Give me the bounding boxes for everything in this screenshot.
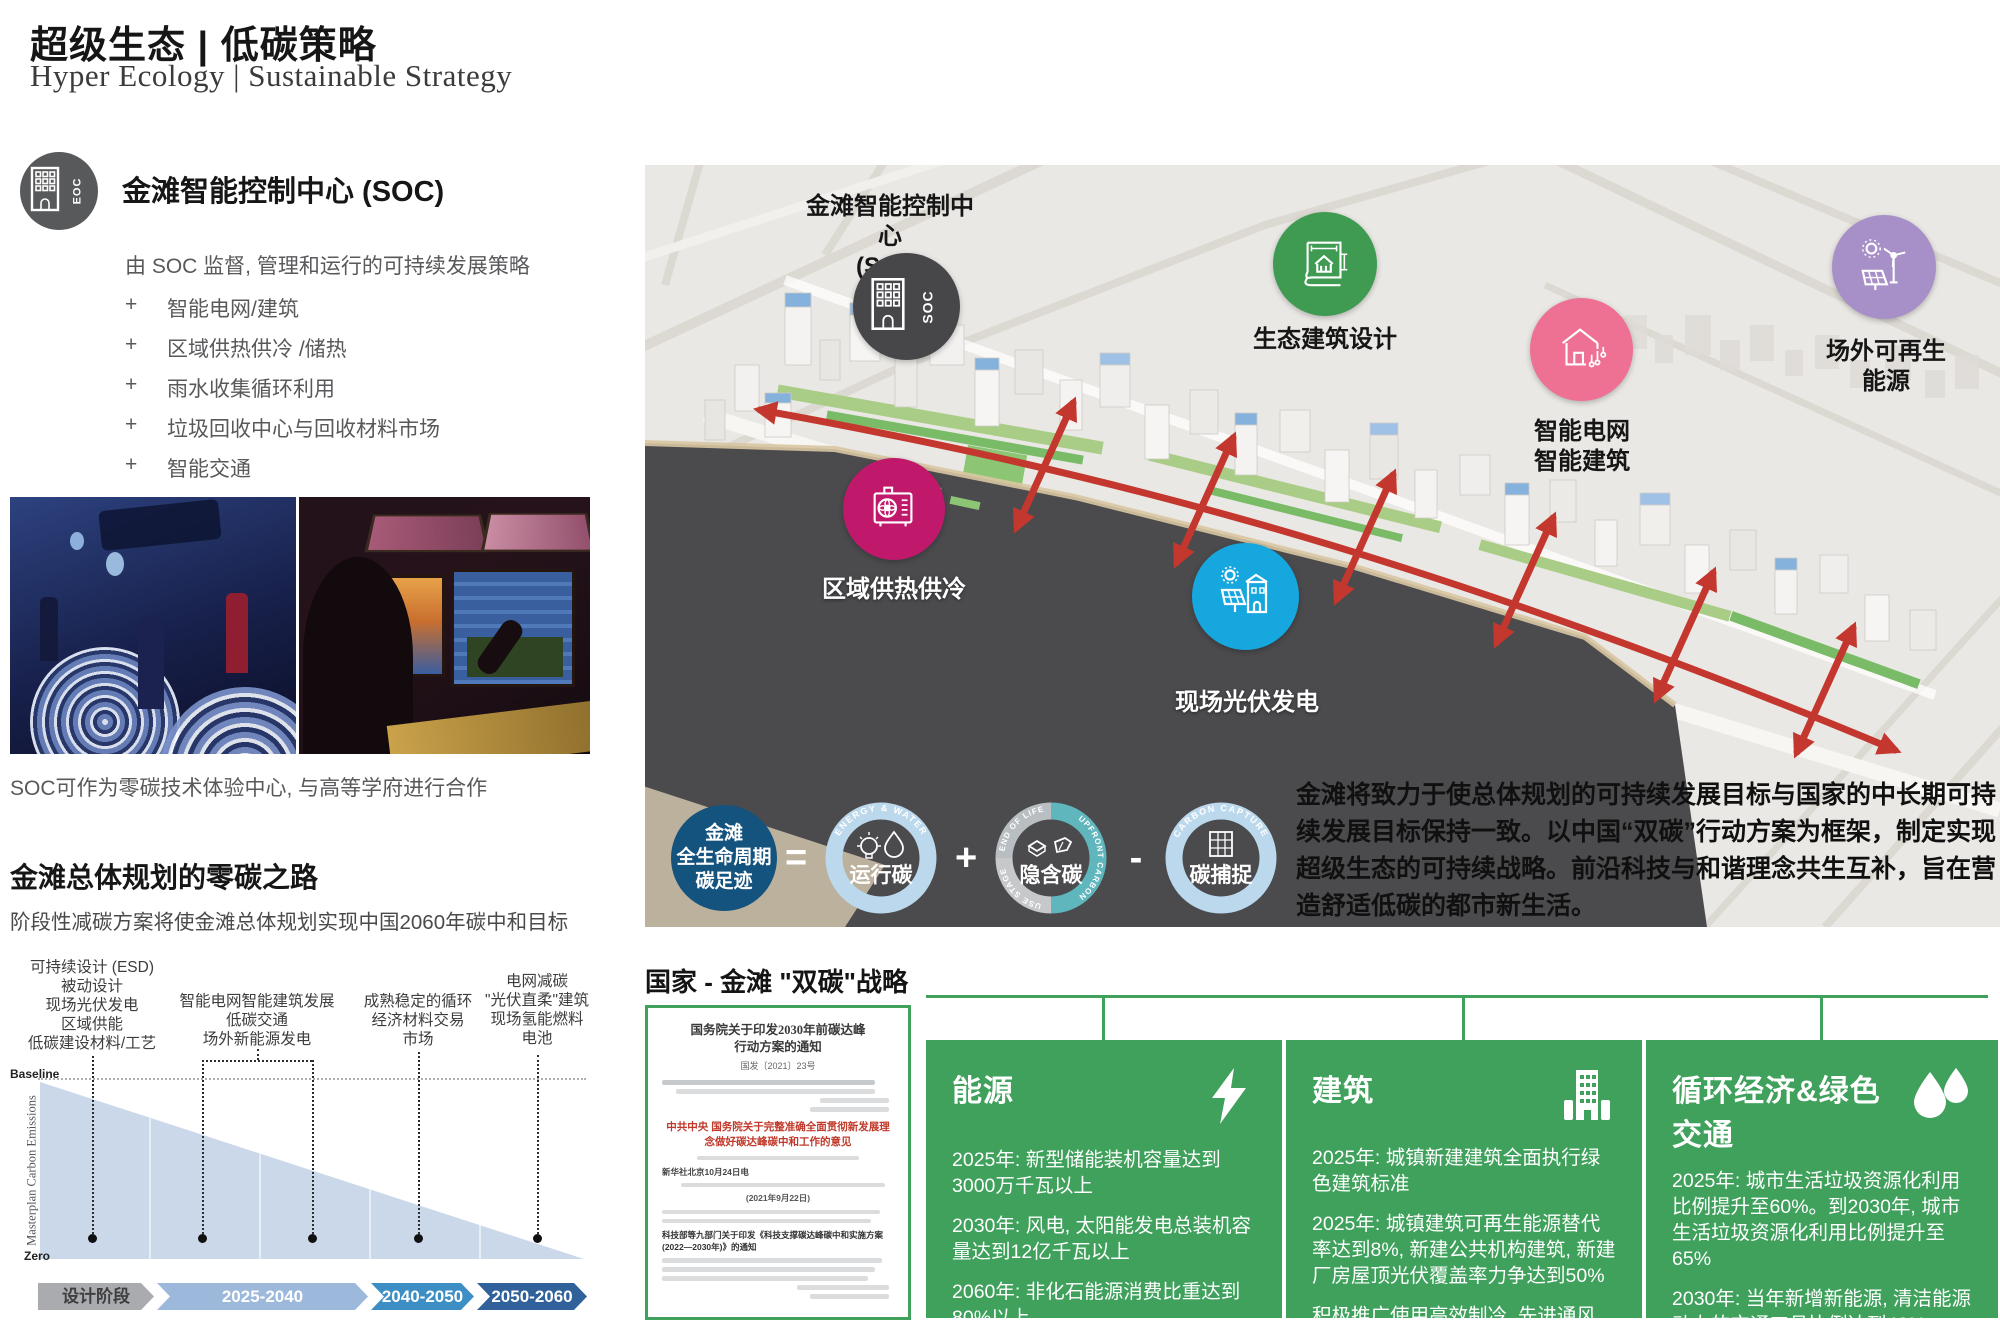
- milestone-stem: [537, 1055, 539, 1238]
- slide-page: 超级生态 | 低碳策略 Hyper Ecology | Sustainable …: [0, 0, 2000, 1324]
- photo-person: [226, 593, 248, 673]
- strategy-paragraph: 金滩将致力于使总体规划的可持续发展目标与国家的中长期可持续发展目标保持一致。以中…: [1296, 777, 1996, 925]
- photo-balloon: [70, 532, 84, 550]
- card-energy-item: 2025年: 新型储能装机容量达到3000万千瓦以上: [952, 1147, 1256, 1199]
- milestone-label-1: 可持续设计 (ESD) 被动设计 现场光伏发电 区域供能 低碳建设材料/工艺: [10, 958, 174, 1053]
- embodied-carbon-ring: END OF LIFE UPFRONT CARBON USE STAGE 隐含碳: [985, 792, 1117, 924]
- plus-sign: +: [955, 837, 977, 880]
- milestone-stem: [418, 1052, 420, 1238]
- phase-bar-2025-2040: 2025-2040: [157, 1283, 368, 1310]
- water-drops-icon: [1908, 1066, 1972, 1133]
- offsite-renewables-circle: [1832, 215, 1936, 319]
- milestone-label-4: 电网减碳 "光伏直柔"建筑 现场氢能燃料 电池: [457, 972, 617, 1048]
- milestone-stem: [202, 1060, 204, 1238]
- doc-title: 国务院关于印发2030年前碳达峰行动方案的通知: [662, 1022, 894, 1056]
- smart-house-icon: [1553, 318, 1611, 381]
- carbon-formula: 金滩 全生命周期 碳足迹 = ENERGY & WATER 运行碳 +: [671, 789, 1287, 927]
- doc-red-title: 中共中央 国务院关于完整准确全面贯彻新发展理念做好碳达峰碳中和工作的意见: [662, 1120, 894, 1150]
- card-buildings-title: 建筑: [1312, 1066, 1374, 1110]
- wind-solar-icon: [1855, 236, 1913, 299]
- soc-intro: 由 SOC 监督, 管理和运行的可持续发展策略: [125, 250, 565, 280]
- connector-stub: [1820, 995, 1823, 1042]
- card-energy: 能源 2025年: 新型储能装机容量达到3000万千瓦以上 2030年: 风电,…: [926, 1040, 1282, 1318]
- card-buildings-item: 2025年: 城镇新建建筑全面执行绿色建筑标准: [1312, 1145, 1616, 1197]
- photo-person: [40, 597, 58, 661]
- photo-strip: [10, 497, 590, 754]
- photo-touchscreen-kiosk: [299, 497, 590, 754]
- milestone-dot: [414, 1234, 423, 1243]
- milestone-dot: [533, 1234, 542, 1243]
- doc-body-lines: [662, 1080, 894, 1112]
- doc-number: 国发〔2021〕23号: [662, 1059, 894, 1072]
- connector-stub: [1462, 995, 1465, 1042]
- eco-design-circle: [1273, 212, 1377, 316]
- dual-carbon-heading: 国家 - 金滩 "双碳"战略: [645, 962, 908, 999]
- card-buildings: 建筑 2025年: 城镇新建建筑全面执行绿色建筑标准 2025年: 城镇建筑可再…: [1286, 1040, 1642, 1318]
- roadmap-subheading: 阶段性减碳方案将使金滩总体规划实现中国2060年碳中和目标: [10, 905, 568, 935]
- soc-heading: 金滩智能控制中心 (SOC): [122, 168, 444, 210]
- soc-circle-badge: SOC: [853, 253, 960, 360]
- lightning-bolt-icon: [1204, 1066, 1256, 1133]
- building-icon: [1554, 1066, 1616, 1131]
- photo-exhibit-hall: [10, 497, 296, 754]
- onsite-pv-circle: [1192, 543, 1299, 650]
- milestone-bracket: [202, 1060, 312, 1062]
- onsite-pv-label: 现场光伏发电: [1157, 688, 1337, 718]
- list-item: +区域供热供冷 /储热: [125, 333, 565, 363]
- carbon-capture-ring: CARBON CAPTURE 碳捕捉: [1155, 792, 1287, 924]
- card-circular-title: 循环经济&绿色交通: [1672, 1066, 1908, 1154]
- list-item: +智能电网/建筑: [125, 293, 565, 323]
- milestone-dot: [198, 1234, 207, 1243]
- doc-tech-title: 科技部等九部门关于印发《科技支撑碳达峰碳中和实施方案(2022—2030年)》的…: [662, 1229, 894, 1253]
- milestone-dot: [308, 1234, 317, 1243]
- milestone-stem: [257, 1049, 259, 1060]
- svg-text:碳捕捉: 碳捕捉: [1190, 863, 1254, 887]
- page-subtitle: Hyper Ecology | Sustainable Strategy: [30, 58, 512, 94]
- eco-design-label: 生态建筑设计: [1237, 325, 1413, 355]
- connector-line: [926, 995, 1988, 998]
- offsite-renewables-label: 场外可再生能源: [1811, 337, 1961, 397]
- card-circular-mobility: 循环经济&绿色交通 2025年: 城市生活垃圾资源化利用比例提升至60%。到20…: [1646, 1040, 1998, 1318]
- roadmap-heading: 金滩总体规划的零碳之路: [10, 856, 318, 896]
- operational-carbon-ring: ENERGY & WATER 运行碳: [815, 792, 947, 924]
- photo-kiosk-top: [364, 515, 489, 552]
- y-axis-label: Masterplan Carbon Emissions: [25, 1071, 40, 1271]
- photo-table: [387, 700, 590, 754]
- svg-text:隐含碳: 隐含碳: [1020, 863, 1084, 887]
- milestone-stem: [312, 1060, 314, 1238]
- card-circular-item: 2025年: 城市生活垃圾资源化利用比例提升至60%。到2030年, 城市生活垃…: [1672, 1168, 1972, 1272]
- bulb-droplet-icon: [857, 832, 903, 858]
- smart-grid-circle: [1530, 298, 1633, 401]
- photo-balloon: [106, 552, 124, 576]
- card-energy-item: 2030年: 风电, 太阳能发电总装机容量达到12亿千瓦以上: [952, 1213, 1256, 1265]
- equals-sign: =: [785, 837, 807, 880]
- svg-text:运行碳: 运行碳: [850, 863, 914, 887]
- capture-unit-icon: [1210, 832, 1232, 856]
- building-icon: [28, 166, 62, 217]
- list-item: +垃圾回收中心与回收材料市场: [125, 413, 565, 443]
- list-item: +雨水收集循环利用: [125, 373, 565, 403]
- solar-house-icon: [1216, 564, 1276, 629]
- card-energy-title: 能源: [952, 1066, 1014, 1110]
- phase-bar-2040-2050: 2040-2050: [371, 1283, 474, 1310]
- soc-circle-text: SOC: [920, 290, 936, 323]
- connector-stub: [1102, 995, 1105, 1042]
- lifecycle-total-circle: 金滩 全生命周期 碳足迹: [671, 805, 777, 911]
- district-energy-circle: [843, 458, 945, 560]
- doc-date: (2021年9月22日): [662, 1192, 894, 1204]
- milestone-label-2: 智能电网智能建筑发展 低碳交通 场外新能源发电: [167, 992, 347, 1049]
- card-buildings-item: 积极推广使用高效制冷, 先进通风, 余热利用, 智能化用能控制等技术: [1312, 1303, 1616, 1324]
- eoc-badge: EOC: [20, 152, 98, 230]
- card-buildings-item: 2025年: 城镇建筑可再生能源替代率达到8%, 新建公共机构建筑, 新建厂房屋…: [1312, 1211, 1616, 1289]
- smart-grid-label: 智能电网智能建筑: [1507, 417, 1657, 477]
- eoc-badge-label: EOC: [71, 178, 83, 205]
- building-icon: [868, 276, 908, 337]
- materials-icon: [1029, 838, 1071, 856]
- phase-bar-design: 设计阶段: [38, 1283, 154, 1310]
- milestone-dot: [88, 1234, 97, 1243]
- blueprint-icon: [1296, 233, 1354, 296]
- hvac-fan-icon: [865, 478, 923, 541]
- card-energy-item: 2060年: 非化石能源消费比重达到80%以上: [952, 1279, 1256, 1324]
- photo-floor-projection: [160, 687, 296, 754]
- minus-sign: -: [1125, 837, 1147, 880]
- district-energy-label: 区域供热供冷: [809, 575, 979, 605]
- masterplan-render: 金滩智能控制中心(SOC) SOC: [645, 165, 2000, 927]
- doc-agency-line: 新华社北京10月24日电: [662, 1166, 894, 1178]
- card-circular-item: 2030年: 当年新增新能源, 清洁能源动力的交通工具比例达到40%: [1672, 1286, 1972, 1324]
- phase-bar-2050-2060: 2050-2060: [477, 1283, 587, 1310]
- policy-document-panel: 国务院关于印发2030年前碳达峰行动方案的通知 国发〔2021〕23号 中共中央…: [645, 1005, 911, 1320]
- photo-caption: SOC可作为零碳技术体验中心, 与高等学府进行合作: [10, 772, 487, 802]
- photo-kiosk-top: [481, 513, 590, 552]
- soc-bullet-list: +智能电网/建筑 +区域供热供冷 /储热 +雨水收集循环利用 +垃圾回收中心与回…: [125, 283, 565, 483]
- photo-ceiling-structure: [98, 499, 222, 551]
- milestone-stem: [92, 1056, 94, 1238]
- zero-carbon-roadmap-chart: Baseline Zero Masterplan Carbon Emission…: [10, 955, 610, 1324]
- photo-person: [138, 617, 164, 709]
- list-item: +智能交通: [125, 453, 565, 483]
